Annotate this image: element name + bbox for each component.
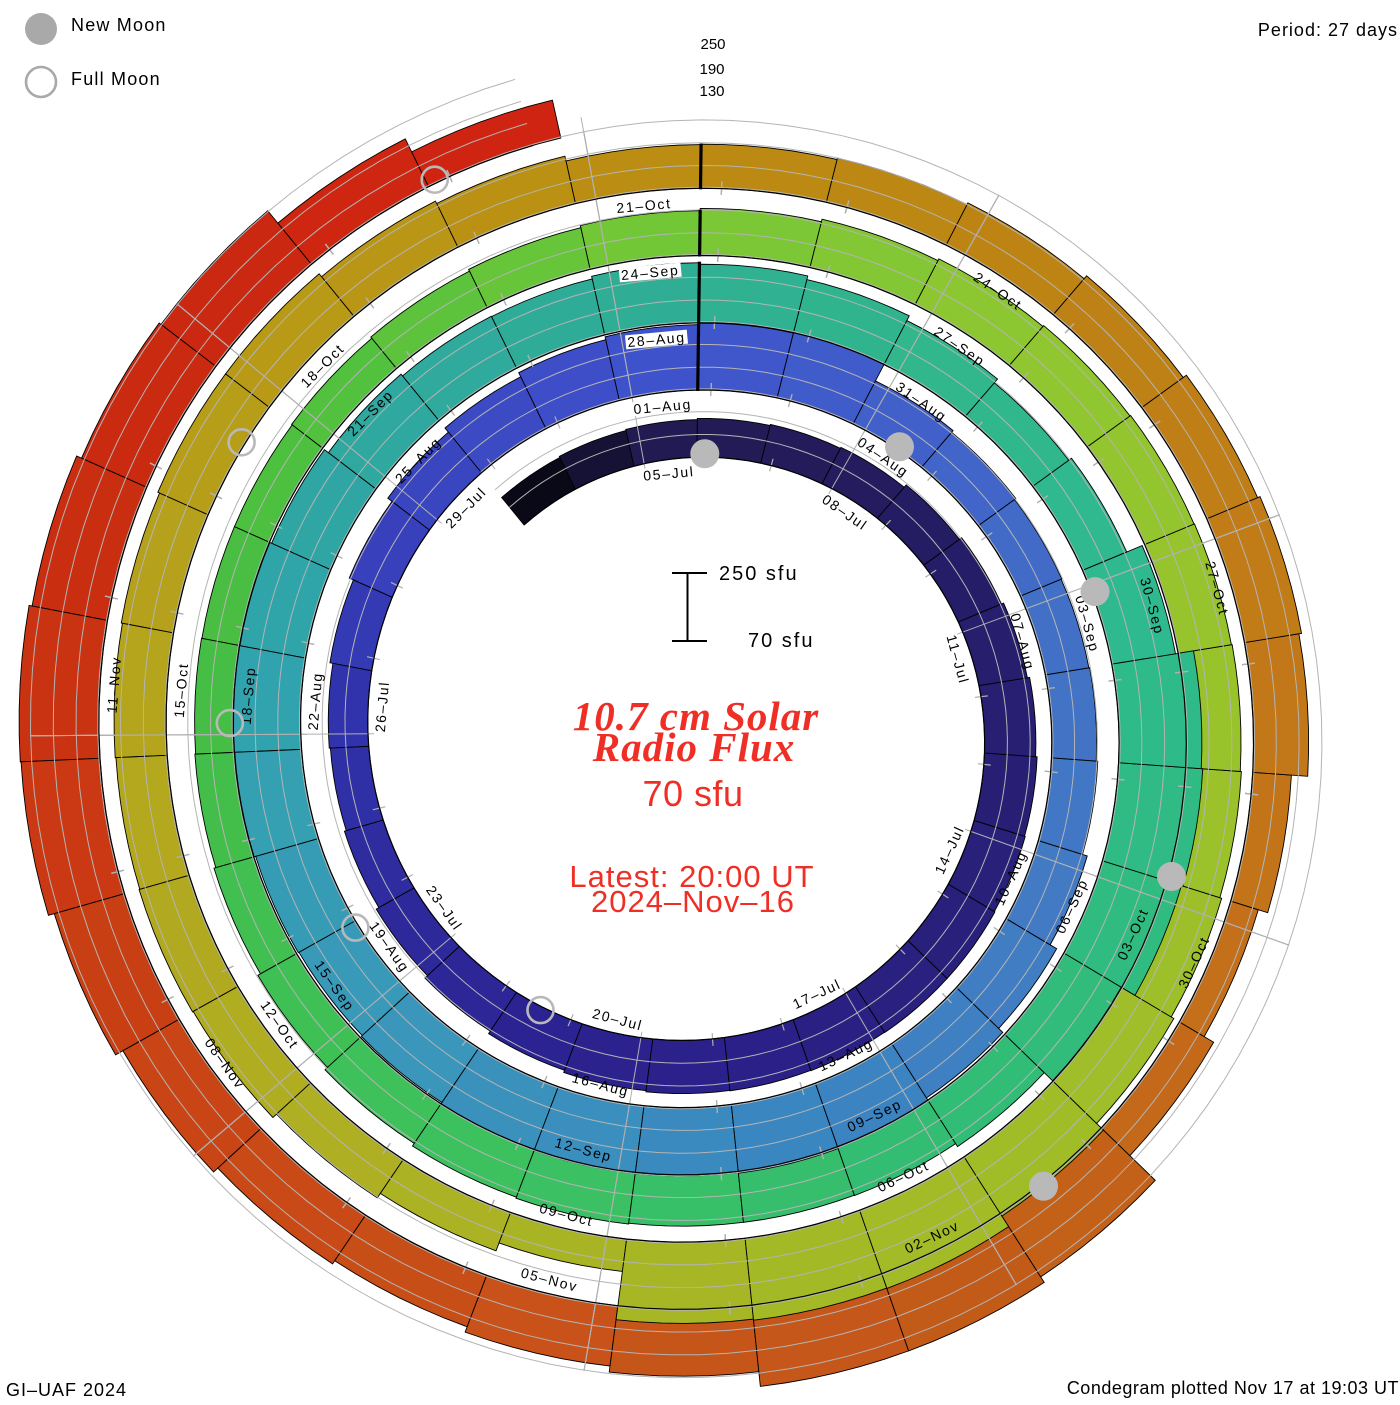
svg-text:250 sfu: 250 sfu — [719, 563, 799, 585]
svg-text:New Moon: New Moon — [71, 15, 167, 35]
svg-text:2024–Nov–16: 2024–Nov–16 — [591, 884, 795, 919]
svg-text:Condegram plotted Nov 17 at 19: Condegram plotted Nov 17 at 19:03 UT — [1067, 1378, 1399, 1398]
svg-text:70 sfu: 70 sfu — [642, 773, 743, 814]
svg-text:Full Moon: Full Moon — [71, 69, 161, 89]
svg-text:250: 250 — [700, 36, 725, 53]
svg-text:70 sfu: 70 sfu — [748, 630, 814, 652]
svg-text:130: 130 — [699, 83, 724, 100]
svg-text:Radio Flux: Radio Flux — [592, 724, 796, 770]
svg-text:190: 190 — [699, 61, 724, 78]
svg-text:GI–UAF 2024: GI–UAF 2024 — [6, 1380, 127, 1400]
svg-text:Period: 27 days: Period: 27 days — [1258, 20, 1398, 40]
